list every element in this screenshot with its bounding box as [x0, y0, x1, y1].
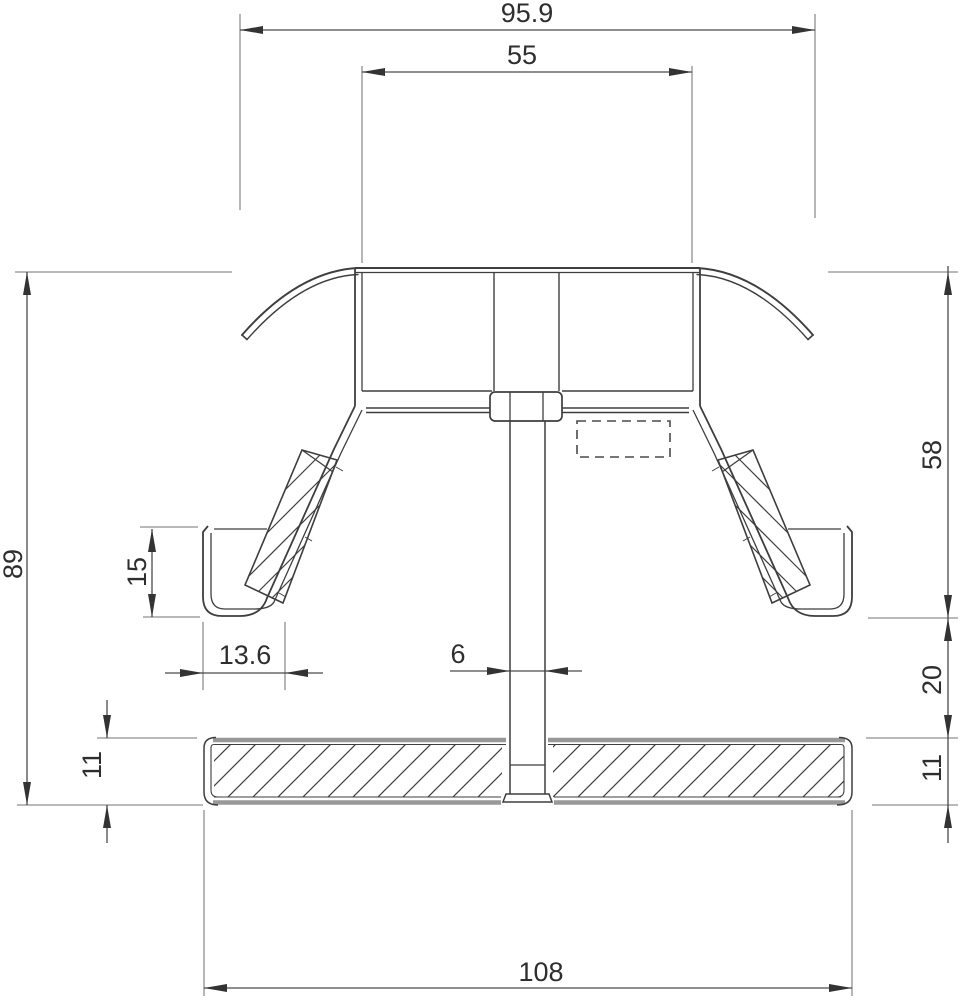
arrow — [545, 667, 568, 675]
bolt-shaft — [503, 421, 552, 802]
right-wing-outer-arc — [697, 268, 813, 335]
dim-label-58: 58 — [917, 440, 947, 470]
plate-hatch-left — [214, 745, 502, 797]
dim-label-11-right: 11 — [917, 754, 947, 782]
arrow — [23, 272, 31, 295]
arrow — [204, 984, 227, 992]
plate-hatch-right — [553, 745, 844, 797]
technical-drawing-canvas: 95.9 55 89 58 20 11 15 11 13.6 6 108 — [0, 0, 961, 1000]
arrow — [103, 805, 111, 828]
arrow — [23, 782, 31, 805]
arrow — [944, 715, 952, 738]
arrow — [944, 618, 952, 641]
spring-wings — [242, 268, 813, 340]
technical-drawing-page: 95.9 55 89 58 20 11 15 11 13.6 6 108 — [0, 0, 961, 1000]
arrow — [240, 26, 263, 34]
dim-label-20: 20 — [917, 665, 947, 695]
dim-label-6: 6 — [450, 639, 465, 669]
dim-label-89: 89 — [0, 549, 28, 579]
dim-label-13-6: 13.6 — [219, 640, 272, 670]
dimension-labels: 95.9 55 89 58 20 11 15 11 13.6 6 108 — [0, 0, 947, 987]
arrow — [944, 595, 952, 618]
arrow — [944, 805, 952, 828]
arrow — [148, 594, 156, 617]
right-wing-tip — [808, 335, 813, 340]
arrow — [180, 669, 203, 677]
left-wing-tip — [242, 335, 247, 340]
washer — [503, 794, 552, 802]
dim-label-15: 15 — [122, 557, 152, 587]
dimension-arrows — [23, 26, 952, 992]
arrow — [362, 68, 385, 76]
dim-label-108: 108 — [518, 957, 563, 987]
dim-label-55: 55 — [507, 40, 537, 70]
extension-lines — [15, 14, 958, 996]
arrow — [487, 667, 510, 675]
dim-label-95-9: 95.9 — [501, 0, 554, 28]
hex-nut — [490, 392, 562, 421]
upper-bridge — [355, 268, 700, 413]
arrow — [829, 984, 852, 992]
arrow — [669, 68, 692, 76]
dashed-marker-box — [577, 421, 670, 457]
arrow — [944, 272, 952, 295]
dimension-lines — [27, 30, 948, 988]
arrow — [285, 669, 308, 677]
dim-label-11-left: 11 — [77, 751, 107, 779]
arrow — [103, 715, 111, 738]
arrow — [148, 529, 156, 552]
nut-body — [490, 392, 562, 421]
left-wing-outer-arc — [242, 268, 358, 335]
arrow — [792, 26, 815, 34]
